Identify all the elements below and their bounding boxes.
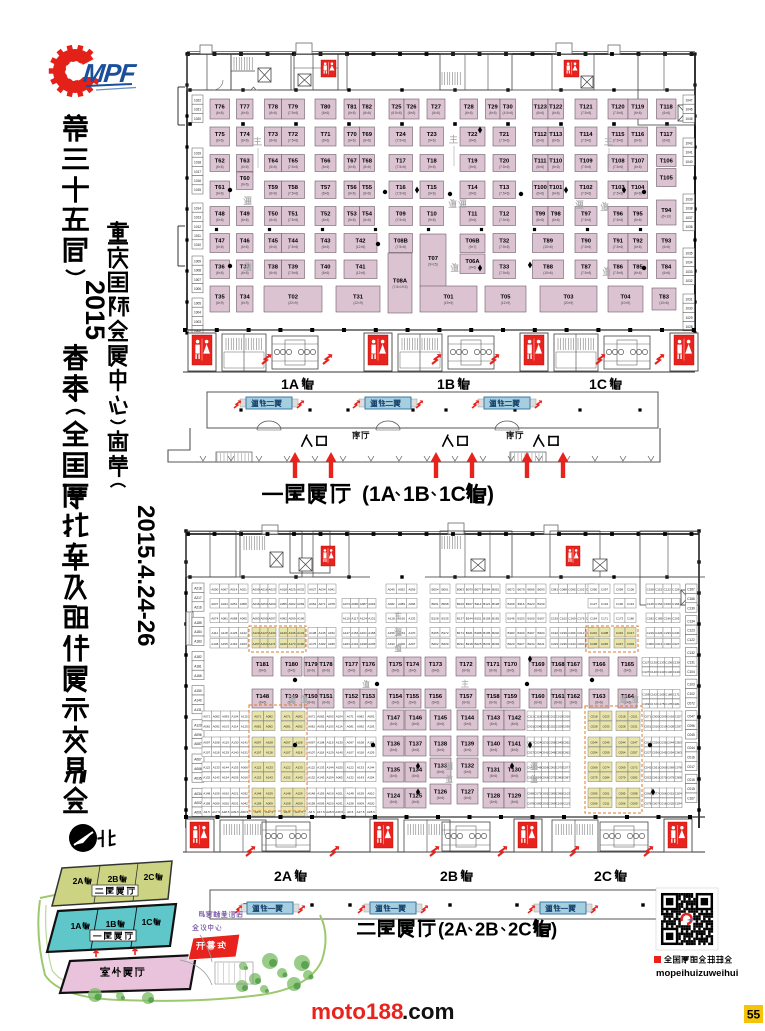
svg-text:T170: T170 <box>504 662 517 668</box>
svg-text:A162: A162 <box>230 642 237 646</box>
svg-text:1C: 1C <box>142 917 153 927</box>
svg-text:T179: T179 <box>304 662 318 668</box>
svg-text:(6×6): (6×6) <box>348 111 356 115</box>
svg-text:C152: C152 <box>655 602 663 606</box>
svg-text:(6×6): (6×6) <box>464 770 472 774</box>
svg-text:(6×6): (6×6) <box>511 774 519 778</box>
svg-text:T136: T136 <box>387 741 401 747</box>
svg-text:B172: B172 <box>441 631 448 635</box>
svg-text:A158: A158 <box>254 801 261 805</box>
svg-text:A090: A090 <box>260 616 267 620</box>
svg-text:C143: C143 <box>658 670 665 674</box>
svg-text:C028: C028 <box>667 724 674 728</box>
svg-text:T41: T41 <box>356 265 367 271</box>
svg-text:(6×6): (6×6) <box>363 192 371 196</box>
svg-text:B093: B093 <box>537 587 544 591</box>
svg-text:A155: A155 <box>231 765 238 769</box>
svg-text:A205: A205 <box>368 642 375 646</box>
svg-text:T45: T45 <box>268 238 279 244</box>
svg-text:1010: 1010 <box>194 243 201 247</box>
svg-text:A009: A009 <box>295 801 302 805</box>
svg-text:A156: A156 <box>388 631 395 635</box>
svg-text:A092: A092 <box>295 724 302 728</box>
svg-text:C068: C068 <box>644 791 651 795</box>
svg-text:A184: A184 <box>194 630 202 634</box>
svg-text:T177: T177 <box>345 662 358 668</box>
svg-text:(12×9): (12×9) <box>353 301 363 305</box>
svg-text:T137: T137 <box>409 741 422 747</box>
svg-text:(6×6): (6×6) <box>216 165 224 169</box>
svg-text:C016: C016 <box>660 801 667 805</box>
svg-text:A020: A020 <box>367 801 374 805</box>
svg-text:(7.5×6): (7.5×6) <box>395 138 406 142</box>
svg-text:C084: C084 <box>603 775 610 779</box>
svg-text:T05: T05 <box>501 294 512 300</box>
svg-text:T61: T61 <box>215 185 226 191</box>
svg-text:A171: A171 <box>268 642 275 646</box>
svg-text:T117: T117 <box>660 132 673 138</box>
svg-text:1C: 1C <box>589 376 607 392</box>
svg-text:T121: T121 <box>579 104 593 110</box>
svg-text:T40: T40 <box>321 265 331 271</box>
svg-text:(6×6): (6×6) <box>348 192 356 196</box>
svg-text:A023: A023 <box>268 587 275 591</box>
svg-text:(6×6): (6×6) <box>408 111 416 115</box>
svg-text:(6×6): (6×6) <box>490 722 498 726</box>
svg-text:(6×6): (6×6) <box>322 218 330 222</box>
svg-text:2A: 2A <box>274 868 292 884</box>
svg-text:C026: C026 <box>563 714 570 718</box>
svg-text:T30: T30 <box>503 104 513 110</box>
svg-text:T107: T107 <box>631 158 644 164</box>
svg-text:A144: A144 <box>222 765 229 769</box>
svg-text:C149: C149 <box>673 670 680 674</box>
svg-text:(6×6): (6×6) <box>365 700 373 704</box>
svg-text:(6×6): (6×6) <box>322 111 330 115</box>
svg-text:(6×6): (6×6) <box>662 271 670 275</box>
svg-text:(6×6): (6×6) <box>570 700 578 704</box>
svg-text:T135: T135 <box>387 767 401 773</box>
svg-text:1B: 1B <box>106 919 117 929</box>
svg-text:C019: C019 <box>660 724 667 728</box>
svg-text:(6×6): (6×6) <box>437 722 445 726</box>
svg-text:A132: A132 <box>283 775 290 779</box>
svg-text:T145: T145 <box>434 715 448 721</box>
svg-text:C166: C166 <box>687 597 695 601</box>
svg-text:T42: T42 <box>356 238 366 244</box>
svg-text:A060: A060 <box>268 602 275 606</box>
svg-text:1011: 1011 <box>194 234 201 238</box>
svg-text:1A: 1A <box>281 376 299 392</box>
svg-text:(2A: (2A <box>438 919 468 940</box>
svg-text:T20: T20 <box>499 158 509 164</box>
svg-text:T141: T141 <box>508 741 522 747</box>
svg-text:(6×6): (6×6) <box>241 165 249 169</box>
svg-text:C051: C051 <box>652 765 659 769</box>
svg-text:C021: C021 <box>631 714 638 718</box>
svg-text:(6×6): (6×6) <box>322 700 330 704</box>
svg-text:A168: A168 <box>368 631 375 635</box>
svg-text:A122: A122 <box>283 765 290 769</box>
svg-text:C229: C229 <box>551 642 559 646</box>
svg-text:T46: T46 <box>240 238 251 244</box>
svg-text:T63: T63 <box>240 158 251 164</box>
svg-text:T70: T70 <box>347 132 357 138</box>
svg-text:(6×6): (6×6) <box>465 111 473 115</box>
svg-text:C118: C118 <box>534 714 541 718</box>
svg-text:B158: B158 <box>483 616 490 620</box>
svg-text:T100: T100 <box>534 185 547 191</box>
svg-text:A125: A125 <box>230 631 237 635</box>
svg-text:T130: T130 <box>508 767 521 773</box>
svg-text:C136: C136 <box>616 602 624 606</box>
svg-text:T151: T151 <box>319 694 333 700</box>
svg-text:T53: T53 <box>347 211 358 217</box>
svg-text:C134: C134 <box>687 619 695 623</box>
svg-text:C035: C035 <box>660 740 667 744</box>
svg-text:A151: A151 <box>241 750 248 754</box>
svg-text:(6×6): (6×6) <box>363 111 371 115</box>
svg-text:C031: C031 <box>631 724 638 728</box>
svg-text:(6×6): (6×6) <box>269 165 277 169</box>
svg-text:(6×6): (6×6) <box>552 111 560 115</box>
svg-text:C011: C011 <box>603 801 610 805</box>
svg-text:C206: C206 <box>568 631 576 635</box>
svg-text:T105: T105 <box>660 176 674 182</box>
svg-text:T38: T38 <box>268 265 279 271</box>
svg-text:1032: 1032 <box>685 279 692 283</box>
svg-text:A140: A140 <box>194 699 202 703</box>
svg-text:T19: T19 <box>468 158 479 164</box>
svg-text:C061: C061 <box>652 775 659 779</box>
svg-text:A120: A120 <box>194 723 202 727</box>
svg-text:A207: A207 <box>408 642 415 646</box>
svg-text:(6×6): (6×6) <box>489 668 497 672</box>
svg-text:T66: T66 <box>321 158 332 164</box>
svg-text:A104: A104 <box>336 714 343 718</box>
svg-text:(4.5×6): (4.5×6) <box>502 111 513 115</box>
svg-text:(9×6): (9×6) <box>428 165 436 169</box>
svg-text:T99: T99 <box>535 211 546 217</box>
svg-text:C164: C164 <box>590 616 598 620</box>
svg-text:B135: B135 <box>441 616 448 620</box>
svg-text:T15: T15 <box>427 185 438 191</box>
svg-text:A136: A136 <box>288 631 295 635</box>
svg-text:.com: .com <box>402 999 455 1024</box>
svg-text:T163: T163 <box>592 694 606 700</box>
svg-text:C102: C102 <box>577 587 585 591</box>
svg-text:(7.5×19.5): (7.5×19.5) <box>392 285 407 289</box>
svg-text:(6×6): (6×6) <box>536 111 544 115</box>
svg-text:(22×9): (22×9) <box>288 301 298 305</box>
svg-text:C023: C023 <box>603 714 610 718</box>
svg-text:A118: A118 <box>296 750 303 754</box>
svg-text:(6×6): (6×6) <box>322 245 330 249</box>
svg-text:C018: C018 <box>619 714 626 718</box>
svg-text:(6×6): (6×6) <box>570 668 578 672</box>
svg-text:C016: C016 <box>687 778 695 782</box>
svg-text:A007: A007 <box>221 587 228 591</box>
svg-text:C106: C106 <box>556 801 563 805</box>
svg-text:T14: T14 <box>468 185 479 191</box>
svg-text:T06B: T06B <box>465 239 479 245</box>
svg-text:C028: C028 <box>591 724 598 728</box>
svg-text:B121: B121 <box>483 602 490 606</box>
svg-text:C090: C090 <box>590 587 598 591</box>
svg-text:T23: T23 <box>427 132 438 138</box>
svg-text:(7.5×6): (7.5×6) <box>499 271 510 275</box>
svg-text:T119: T119 <box>631 104 645 110</box>
svg-text:C088: C088 <box>560 587 568 591</box>
svg-text:A17.5: A17.5 <box>212 810 220 814</box>
svg-text:(6×6): (6×6) <box>322 271 330 275</box>
svg-text:C169: C169 <box>642 702 649 706</box>
svg-text:A107: A107 <box>254 750 261 754</box>
svg-text:B098: B098 <box>441 602 448 606</box>
svg-text:A032: A032 <box>297 587 304 591</box>
svg-text:A034: A034 <box>318 587 325 591</box>
svg-text:T156: T156 <box>429 694 443 700</box>
svg-text:A032: A032 <box>241 791 248 795</box>
svg-text:T60: T60 <box>240 176 250 182</box>
svg-text:T25: T25 <box>392 104 403 110</box>
svg-text:A216: A216 <box>194 605 202 609</box>
svg-text:C037: C037 <box>675 724 682 728</box>
svg-text:C024: C024 <box>675 791 682 795</box>
svg-text:(7.5×6): (7.5×6) <box>499 192 510 196</box>
svg-text:C060: C060 <box>660 765 667 769</box>
svg-text:T96: T96 <box>613 211 624 217</box>
svg-text:T168: T168 <box>551 662 565 668</box>
svg-text:C245: C245 <box>601 642 609 646</box>
svg-text:C063: C063 <box>675 750 682 754</box>
svg-text:C115: C115 <box>655 587 662 591</box>
svg-text:C210: C210 <box>616 631 624 635</box>
svg-text:A097: A097 <box>283 740 290 744</box>
svg-text:A009: A009 <box>317 801 324 805</box>
svg-text:C057: C057 <box>631 750 638 754</box>
svg-text:(6×6): (6×6) <box>634 245 642 249</box>
svg-text:(6×6): (6×6) <box>437 796 445 800</box>
svg-text:(6×6): (6×6) <box>269 218 277 222</box>
svg-text:A095: A095 <box>240 616 247 620</box>
svg-text:B054: B054 <box>431 587 438 591</box>
svg-text:C162: C162 <box>560 616 568 620</box>
svg-text:(7.5×6): (7.5×6) <box>613 111 624 115</box>
svg-text:T31: T31 <box>353 294 364 300</box>
svg-text:T54: T54 <box>362 211 373 217</box>
svg-text:C104: C104 <box>687 670 695 674</box>
svg-text:A28.5: A28.5 <box>326 810 334 814</box>
svg-text:A082: A082 <box>388 602 395 606</box>
svg-text:C217: C217 <box>627 631 635 635</box>
svg-text:T171: T171 <box>486 662 500 668</box>
svg-text:C027: C027 <box>644 750 651 754</box>
svg-text:(6×6): (6×6) <box>216 218 224 222</box>
svg-text:A161: A161 <box>360 631 367 635</box>
svg-text:A069: A069 <box>297 602 304 606</box>
svg-text:T128: T128 <box>487 793 501 799</box>
svg-text:A119: A119 <box>388 616 395 620</box>
svg-text:T39: T39 <box>288 265 299 271</box>
svg-text:C054: C054 <box>591 750 598 754</box>
svg-text:T178: T178 <box>319 662 333 668</box>
svg-text:T33: T33 <box>499 265 510 271</box>
svg-text:T51: T51 <box>288 211 299 217</box>
svg-text:T154: T154 <box>389 694 403 700</box>
svg-text:(6×6): (6×6) <box>216 138 224 142</box>
svg-text:(6×6): (6×6) <box>365 668 373 672</box>
svg-text:T84: T84 <box>661 265 672 271</box>
svg-text:B183: B183 <box>507 631 514 635</box>
svg-text:T97: T97 <box>581 211 591 217</box>
svg-text:A170: A170 <box>408 631 415 635</box>
svg-text:(12×9): (12×9) <box>501 301 511 305</box>
svg-text:A071: A071 <box>283 714 290 718</box>
svg-text:2B: 2B <box>475 919 499 940</box>
svg-text:C006: C006 <box>647 642 655 646</box>
svg-text:T148: T148 <box>256 694 270 700</box>
svg-text:A078: A078 <box>328 602 335 606</box>
svg-text:A093: A093 <box>367 714 374 718</box>
svg-text:(6×6): (6×6) <box>392 668 400 672</box>
svg-text:(6×6): (6×6) <box>511 748 519 752</box>
svg-text:A071: A071 <box>308 714 315 718</box>
svg-text:C007: C007 <box>652 801 659 805</box>
svg-text:C052: C052 <box>644 775 651 779</box>
svg-text:T173: T173 <box>429 662 443 668</box>
svg-text:T139: T139 <box>461 741 475 747</box>
svg-text:(19×9): (19×9) <box>444 301 454 305</box>
svg-text:A124: A124 <box>360 616 367 620</box>
svg-text:C132: C132 <box>687 651 695 655</box>
svg-text:A067: A067 <box>194 758 202 762</box>
svg-text:T02: T02 <box>288 294 298 300</box>
svg-text:C009: C009 <box>631 801 638 805</box>
svg-text:C122: C122 <box>687 638 695 642</box>
svg-text:C166: C166 <box>672 602 680 606</box>
svg-text:T28: T28 <box>464 104 475 110</box>
svg-text:A166: A166 <box>194 674 202 678</box>
svg-text:T172: T172 <box>459 662 472 668</box>
svg-text:C069: C069 <box>591 765 598 769</box>
svg-text:A189: A189 <box>328 642 335 646</box>
svg-text:C015: C015 <box>687 787 695 791</box>
svg-text:T27: T27 <box>431 104 441 110</box>
svg-text:A133: A133 <box>357 765 364 769</box>
svg-text:): ) <box>551 919 557 940</box>
svg-text:(6×6): (6×6) <box>322 138 330 142</box>
svg-text:1012: 1012 <box>194 225 201 229</box>
svg-text:1046: 1046 <box>685 108 692 112</box>
svg-text:T142: T142 <box>508 715 521 721</box>
svg-text:A158: A158 <box>308 801 315 805</box>
svg-text:(7.5×6): (7.5×6) <box>395 245 406 249</box>
svg-text:A175: A175 <box>309 642 316 646</box>
svg-text:T165: T165 <box>621 662 635 668</box>
svg-text:T59: T59 <box>268 185 279 191</box>
svg-text:C131: C131 <box>687 660 695 664</box>
svg-text:A051: A051 <box>230 602 237 606</box>
svg-text:(6×6): (6×6) <box>662 111 670 115</box>
svg-text:B220: B220 <box>507 642 514 646</box>
svg-text:C162: C162 <box>650 693 657 697</box>
svg-text:A087: A087 <box>360 602 367 606</box>
svg-text:C026: C026 <box>652 740 659 744</box>
svg-text:A118: A118 <box>266 750 273 754</box>
svg-text:C010: C010 <box>652 724 659 728</box>
svg-text:C042: C042 <box>644 765 651 769</box>
svg-text:C139: C139 <box>673 661 680 665</box>
svg-text:T169: T169 <box>531 662 545 668</box>
svg-text:A132: A132 <box>254 775 261 779</box>
svg-text:A099: A099 <box>288 616 295 620</box>
svg-text:(6×6): (6×6) <box>307 668 315 672</box>
svg-text:T29: T29 <box>488 104 499 110</box>
svg-text:A193: A193 <box>388 642 395 646</box>
svg-text:C049: C049 <box>603 740 610 744</box>
svg-text:C070: C070 <box>660 775 667 779</box>
svg-text:C069: C069 <box>619 765 626 769</box>
svg-text:T06A: T06A <box>465 259 480 265</box>
svg-text:2C: 2C <box>508 919 532 940</box>
svg-text:T01: T01 <box>444 294 455 300</box>
svg-text:A005: A005 <box>231 775 238 779</box>
svg-text:C053: C053 <box>675 740 682 744</box>
svg-text:T90: T90 <box>581 238 591 244</box>
svg-text:A28.5: A28.5 <box>367 810 375 814</box>
svg-text:T75: T75 <box>215 132 226 138</box>
svg-text:B188: B188 <box>474 631 481 635</box>
svg-text:A096: A096 <box>408 602 415 606</box>
svg-text:(6×6): (6×6) <box>241 183 249 187</box>
svg-text:C108: C108 <box>647 587 655 591</box>
svg-text:A087: A087 <box>194 742 202 746</box>
svg-text:T111: T111 <box>534 158 547 164</box>
svg-text:T82: T82 <box>362 104 372 110</box>
svg-text:A131: A131 <box>194 708 202 712</box>
svg-text:A002: A002 <box>194 801 202 805</box>
svg-text:B151: B151 <box>474 616 481 620</box>
svg-text:T57: T57 <box>321 185 331 191</box>
svg-text:A154: A154 <box>222 775 229 779</box>
svg-text:(7.5×6): (7.5×6) <box>613 271 624 275</box>
svg-text:(6×6): (6×6) <box>554 668 562 672</box>
svg-text:C020: C020 <box>664 642 672 646</box>
svg-text:1A: 1A <box>71 921 82 931</box>
svg-text:(6×6): (6×6) <box>595 700 603 704</box>
svg-text:T26: T26 <box>407 104 418 110</box>
svg-text:(6×6): (6×6) <box>534 668 542 672</box>
svg-text:A154: A154 <box>351 631 358 635</box>
svg-text:A152: A152 <box>328 631 335 635</box>
svg-text:A154: A154 <box>367 775 374 779</box>
svg-text:C044: C044 <box>591 740 598 744</box>
svg-text:A122: A122 <box>254 765 261 769</box>
svg-text:A114: A114 <box>232 724 239 728</box>
svg-text:C139: C139 <box>687 606 695 610</box>
svg-text:C155: C155 <box>551 616 559 620</box>
svg-text:(6×6): (6×6) <box>409 668 417 672</box>
svg-text:A073: A073 <box>343 602 350 606</box>
svg-text:(6×6): (6×6) <box>269 192 277 196</box>
svg-text:C015: C015 <box>667 791 674 795</box>
svg-text:A200: A200 <box>398 642 405 646</box>
svg-text:C006: C006 <box>619 801 626 805</box>
svg-text:C111: C111 <box>527 714 534 718</box>
svg-text:A097: A097 <box>254 740 261 744</box>
svg-text:(9×6): (9×6) <box>428 138 436 142</box>
